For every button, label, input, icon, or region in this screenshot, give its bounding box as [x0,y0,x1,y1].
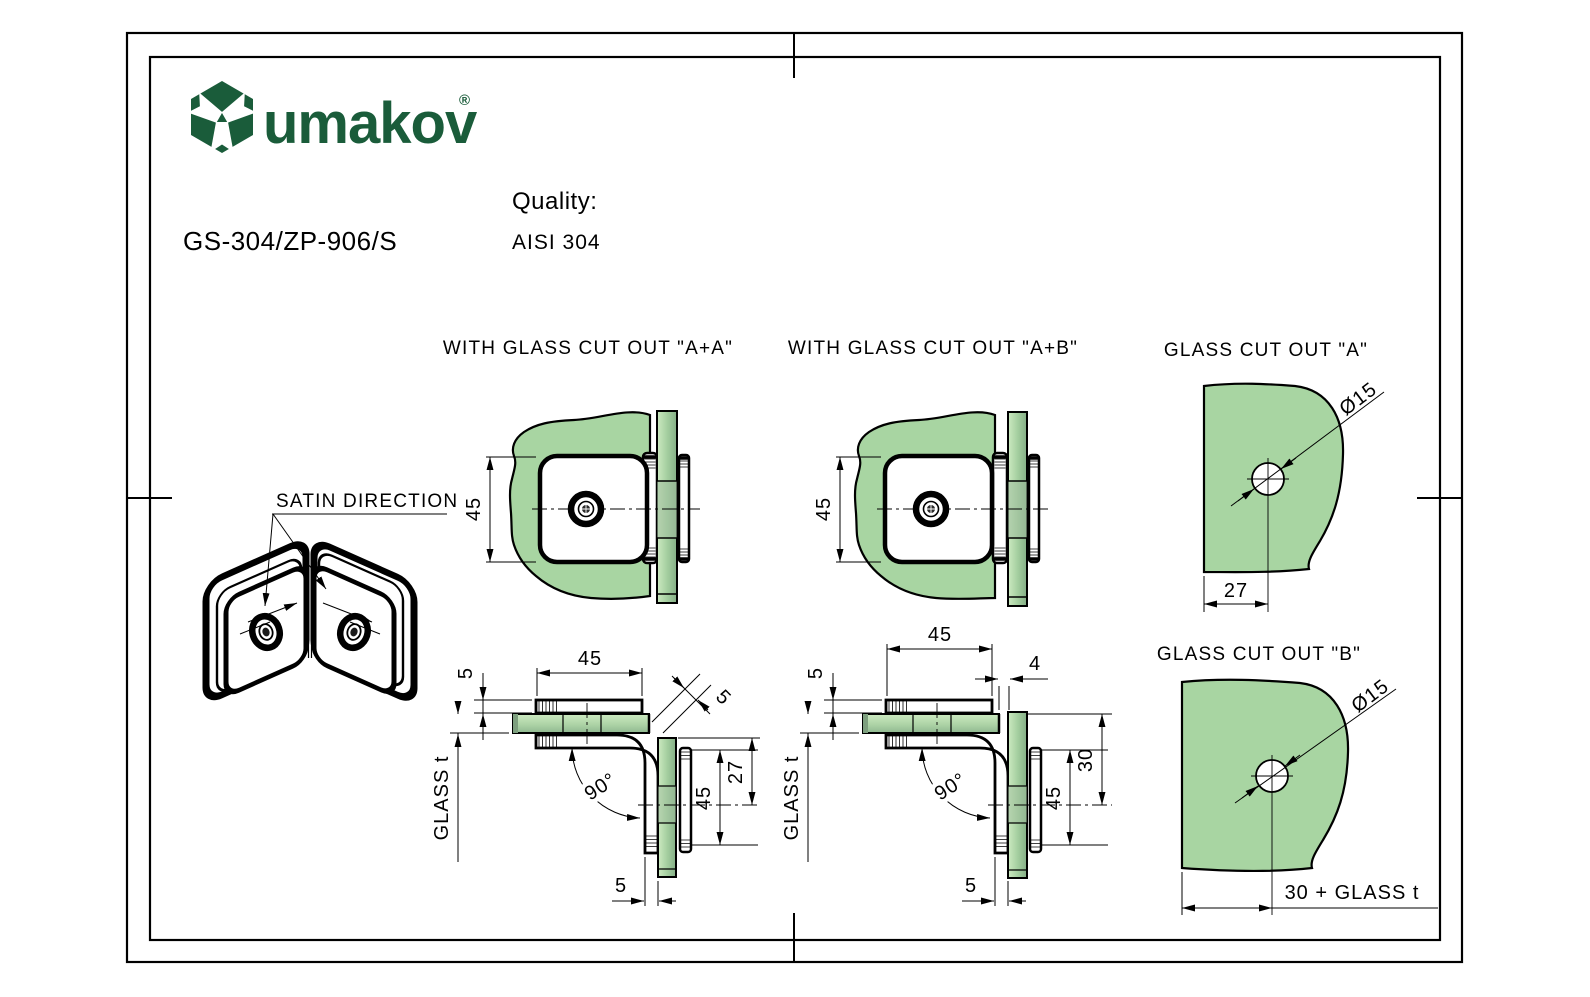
svg-text:90°: 90° [931,769,971,806]
svg-text:30: 30 [1075,748,1097,772]
svg-text:27: 27 [725,760,747,784]
svg-text:GLASS t: GLASS t [431,756,453,841]
svg-text:45: 45 [463,497,485,521]
svg-text:5: 5 [805,667,827,679]
title-cutout-a: GLASS CUT OUT "A" [1164,340,1368,361]
umakov-logo-icon [185,79,261,159]
clamp-plate-top [536,700,642,713]
satin-direction-label: SATIN DIRECTION [276,491,458,512]
clamp-bar-right [1030,748,1041,852]
svg-text:5: 5 [965,875,977,897]
brand-wordmark: umakov [263,90,476,157]
dim-glass-t: GLASS t [781,701,859,862]
glass-horizontal [513,714,649,733]
svg-text:27: 27 [1224,580,1248,602]
svg-text:45: 45 [928,624,952,646]
quality-value: AISI 304 [512,231,601,255]
dim-27: 27 [1204,576,1268,612]
svg-text:5: 5 [455,667,477,679]
svg-text:5: 5 [615,875,627,897]
svg-text:45: 45 [1043,786,1065,810]
svg-text:45: 45 [693,786,715,810]
dim-angle-90: 90° [572,748,640,818]
clamp-bar-left [993,453,1007,563]
registered-mark: ® [459,92,470,109]
dim-corner-5: 5 [652,674,735,733]
svg-text:4: 4 [1029,653,1041,675]
clamp-plate-top [886,700,992,713]
cutout-a-view: Ø15 27 [1204,378,1384,612]
svg-text:90°: 90° [581,769,621,806]
clamp-bar-right [679,455,689,562]
svg-text:Ø15: Ø15 [1335,378,1381,420]
iso-corner-ridge [309,558,312,658]
title-top-view-ab: WITH GLASS CUT OUT "A+B" [788,338,1078,359]
title-cutout-b: GLASS CUT OUT "B" [1157,644,1361,665]
top-view-ab: 45 [813,412,1048,606]
dim-30-plus-glass: 30 + GLASS t [1182,872,1438,915]
svg-text:45: 45 [578,648,602,670]
svg-text:Ø15: Ø15 [1347,675,1393,717]
cutout-b-view: Ø15 30 + GLASS t [1182,675,1438,915]
quality-label: Quality: [512,188,597,216]
svg-text:5: 5 [711,686,735,710]
dim-top-45: 45 [537,648,642,696]
iso-view: SATIN DIRECTION [206,491,458,703]
top-view-aa: 45 [463,411,700,603]
svg-text:GLASS t: GLASS t [781,756,803,841]
dim-glass-t: GLASS t [431,701,509,862]
drawing-sheet: WITH GLASS CUT OUT "A+A" WITH GLASS CUT … [0,0,1590,997]
side-view-aa: 45 5 GLASS t 90° [431,648,760,906]
svg-text:30 + GLASS t: 30 + GLASS t [1285,882,1420,904]
product-code: GS-304/ZP-906/S [183,226,397,257]
clamp-bar-right [680,748,691,852]
dim-top-45: 45 [887,624,992,696]
clamp-bar-right [1029,455,1039,562]
side-view-ab: 45 4 5 GLASS t [781,624,1112,906]
glass-horizontal [863,714,999,733]
dim-angle-90: 90° [922,748,990,818]
title-top-view-aa: WITH GLASS CUT OUT "A+A" [443,338,733,359]
svg-text:45: 45 [813,497,835,521]
